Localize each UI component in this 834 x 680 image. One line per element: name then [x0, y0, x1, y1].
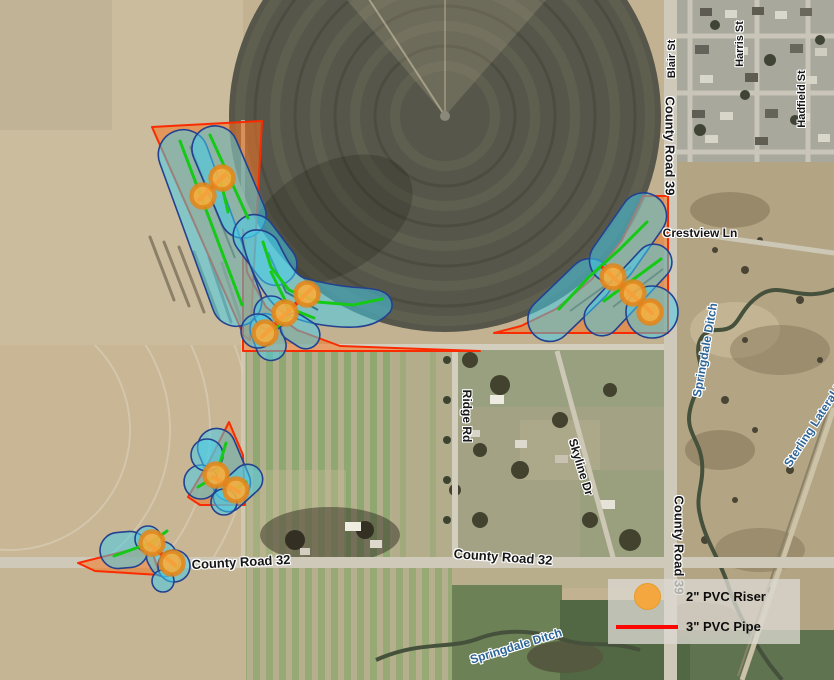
- aerial-map-canvas: [0, 0, 834, 680]
- farmstead: [260, 507, 400, 563]
- legend-riser-label: 2" PVC Riser: [686, 589, 766, 604]
- pvc-riser-marker: [622, 282, 645, 305]
- town-blocks: [668, 0, 834, 162]
- rural-parcels: [449, 347, 664, 561]
- pvc-riser-marker: [296, 283, 319, 306]
- legend-row-riser: 2" PVC Riser: [608, 582, 800, 610]
- pvc-riser-marker: [141, 532, 164, 555]
- pvc-riser-marker: [254, 322, 277, 345]
- pvc-riser-marker: [274, 302, 297, 325]
- pvc-riser-marker: [639, 301, 662, 324]
- pvc-riser-marker: [205, 464, 228, 487]
- riser-symbol-cell: [608, 583, 686, 610]
- pvc-riser-marker: [225, 479, 248, 502]
- map-viewport[interactable]: Blair StHarris StHadfield StCounty Road …: [0, 0, 834, 680]
- pipe-line-icon: [616, 625, 678, 629]
- pvc-riser-marker: [211, 167, 234, 190]
- legend-row-pipe: 3" PVC Pipe: [608, 613, 800, 641]
- pvc-riser-marker: [161, 552, 184, 575]
- pvc-riser-marker: [602, 266, 625, 289]
- legend-pipe-label: 3" PVC Pipe: [686, 619, 761, 634]
- pvc-riser-marker: [192, 185, 215, 208]
- riser-circle-icon: [634, 583, 661, 610]
- pipe-symbol-cell: [608, 625, 686, 629]
- legend: 2" PVC Riser 3" PVC Pipe: [608, 579, 800, 644]
